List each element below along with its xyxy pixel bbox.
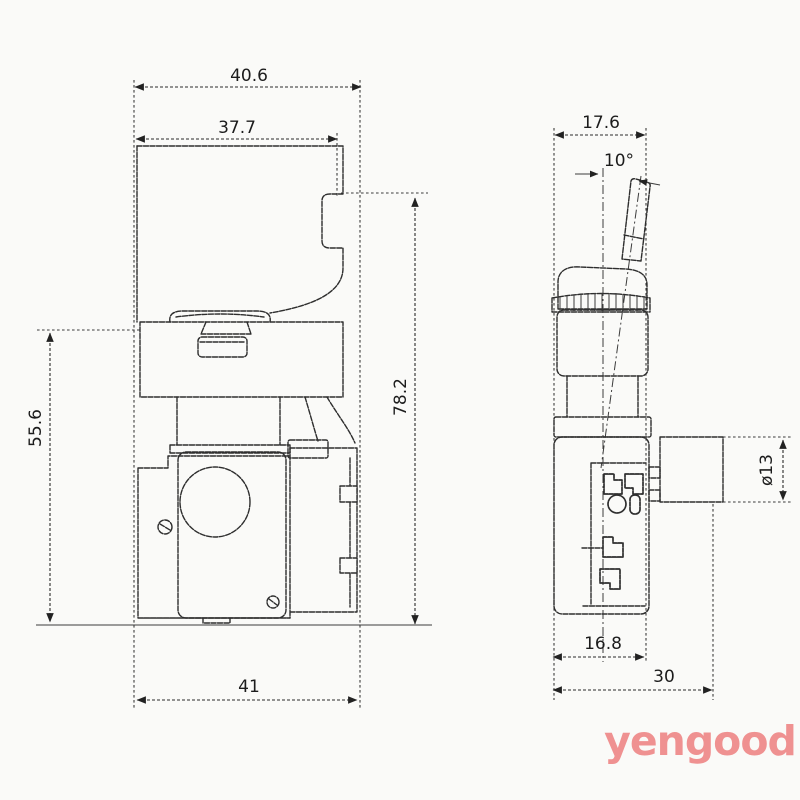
label-upper-width: 37.7 [218,118,256,138]
label-side-base-width: 16.8 [584,634,622,654]
side-view [552,168,723,662]
watermark-text: yengood [604,717,796,765]
base-cover-plate [178,452,286,618]
trigger-saddle-inner-line [176,314,264,317]
extension-lines [36,80,791,710]
trigger-switch-drawing: 40.6 37.7 55.6 78.2 41 17.6 10° ø13 16.8… [0,0,800,800]
label-lever-angle: 10° [604,151,634,171]
dimension-lines [50,87,783,700]
side-body-panel-lines [582,463,646,606]
adjustment-dial [608,495,626,513]
base-outline [138,456,290,623]
terminal-3 [603,537,623,557]
switch-body-block [140,322,343,397]
label-boss-diameter: ø13 [757,454,777,486]
trigger-stem [177,397,280,445]
terminal-lug-lower [340,558,357,573]
label-base-width: 41 [238,677,260,697]
label-lower-height: 55.6 [26,409,46,447]
bracket-outline [137,146,343,313]
label-side-depth: 30 [653,667,675,687]
base-mounting-hole [180,467,250,537]
trigger-neck [201,322,251,334]
trigger-knob [198,337,247,357]
wire-channel [305,397,355,443]
technical-drawing-page: 40.6 37.7 55.6 78.2 41 17.6 10° ø13 16.8… [0,0,800,800]
toggle-lever-joint-line [624,235,644,239]
front-view [137,146,357,623]
label-side-width: 17.6 [582,113,620,133]
terminal-1 [604,474,622,494]
boss-stub-lower [649,490,660,501]
terminal-lug-upper [340,486,357,502]
side-boss [660,437,723,502]
terminal-pill [630,495,640,514]
label-overall-height: 78.2 [391,378,411,416]
terminal-block-outline [290,448,357,618]
lever-axis-line [601,176,641,468]
screw-bottom-slot [269,599,277,605]
screw-left-slot [160,524,170,530]
label-overall-width: 40.6 [230,66,268,86]
terminal-entry-box [288,440,328,458]
boss-stub-upper [649,467,660,478]
terminal-2 [625,474,643,494]
